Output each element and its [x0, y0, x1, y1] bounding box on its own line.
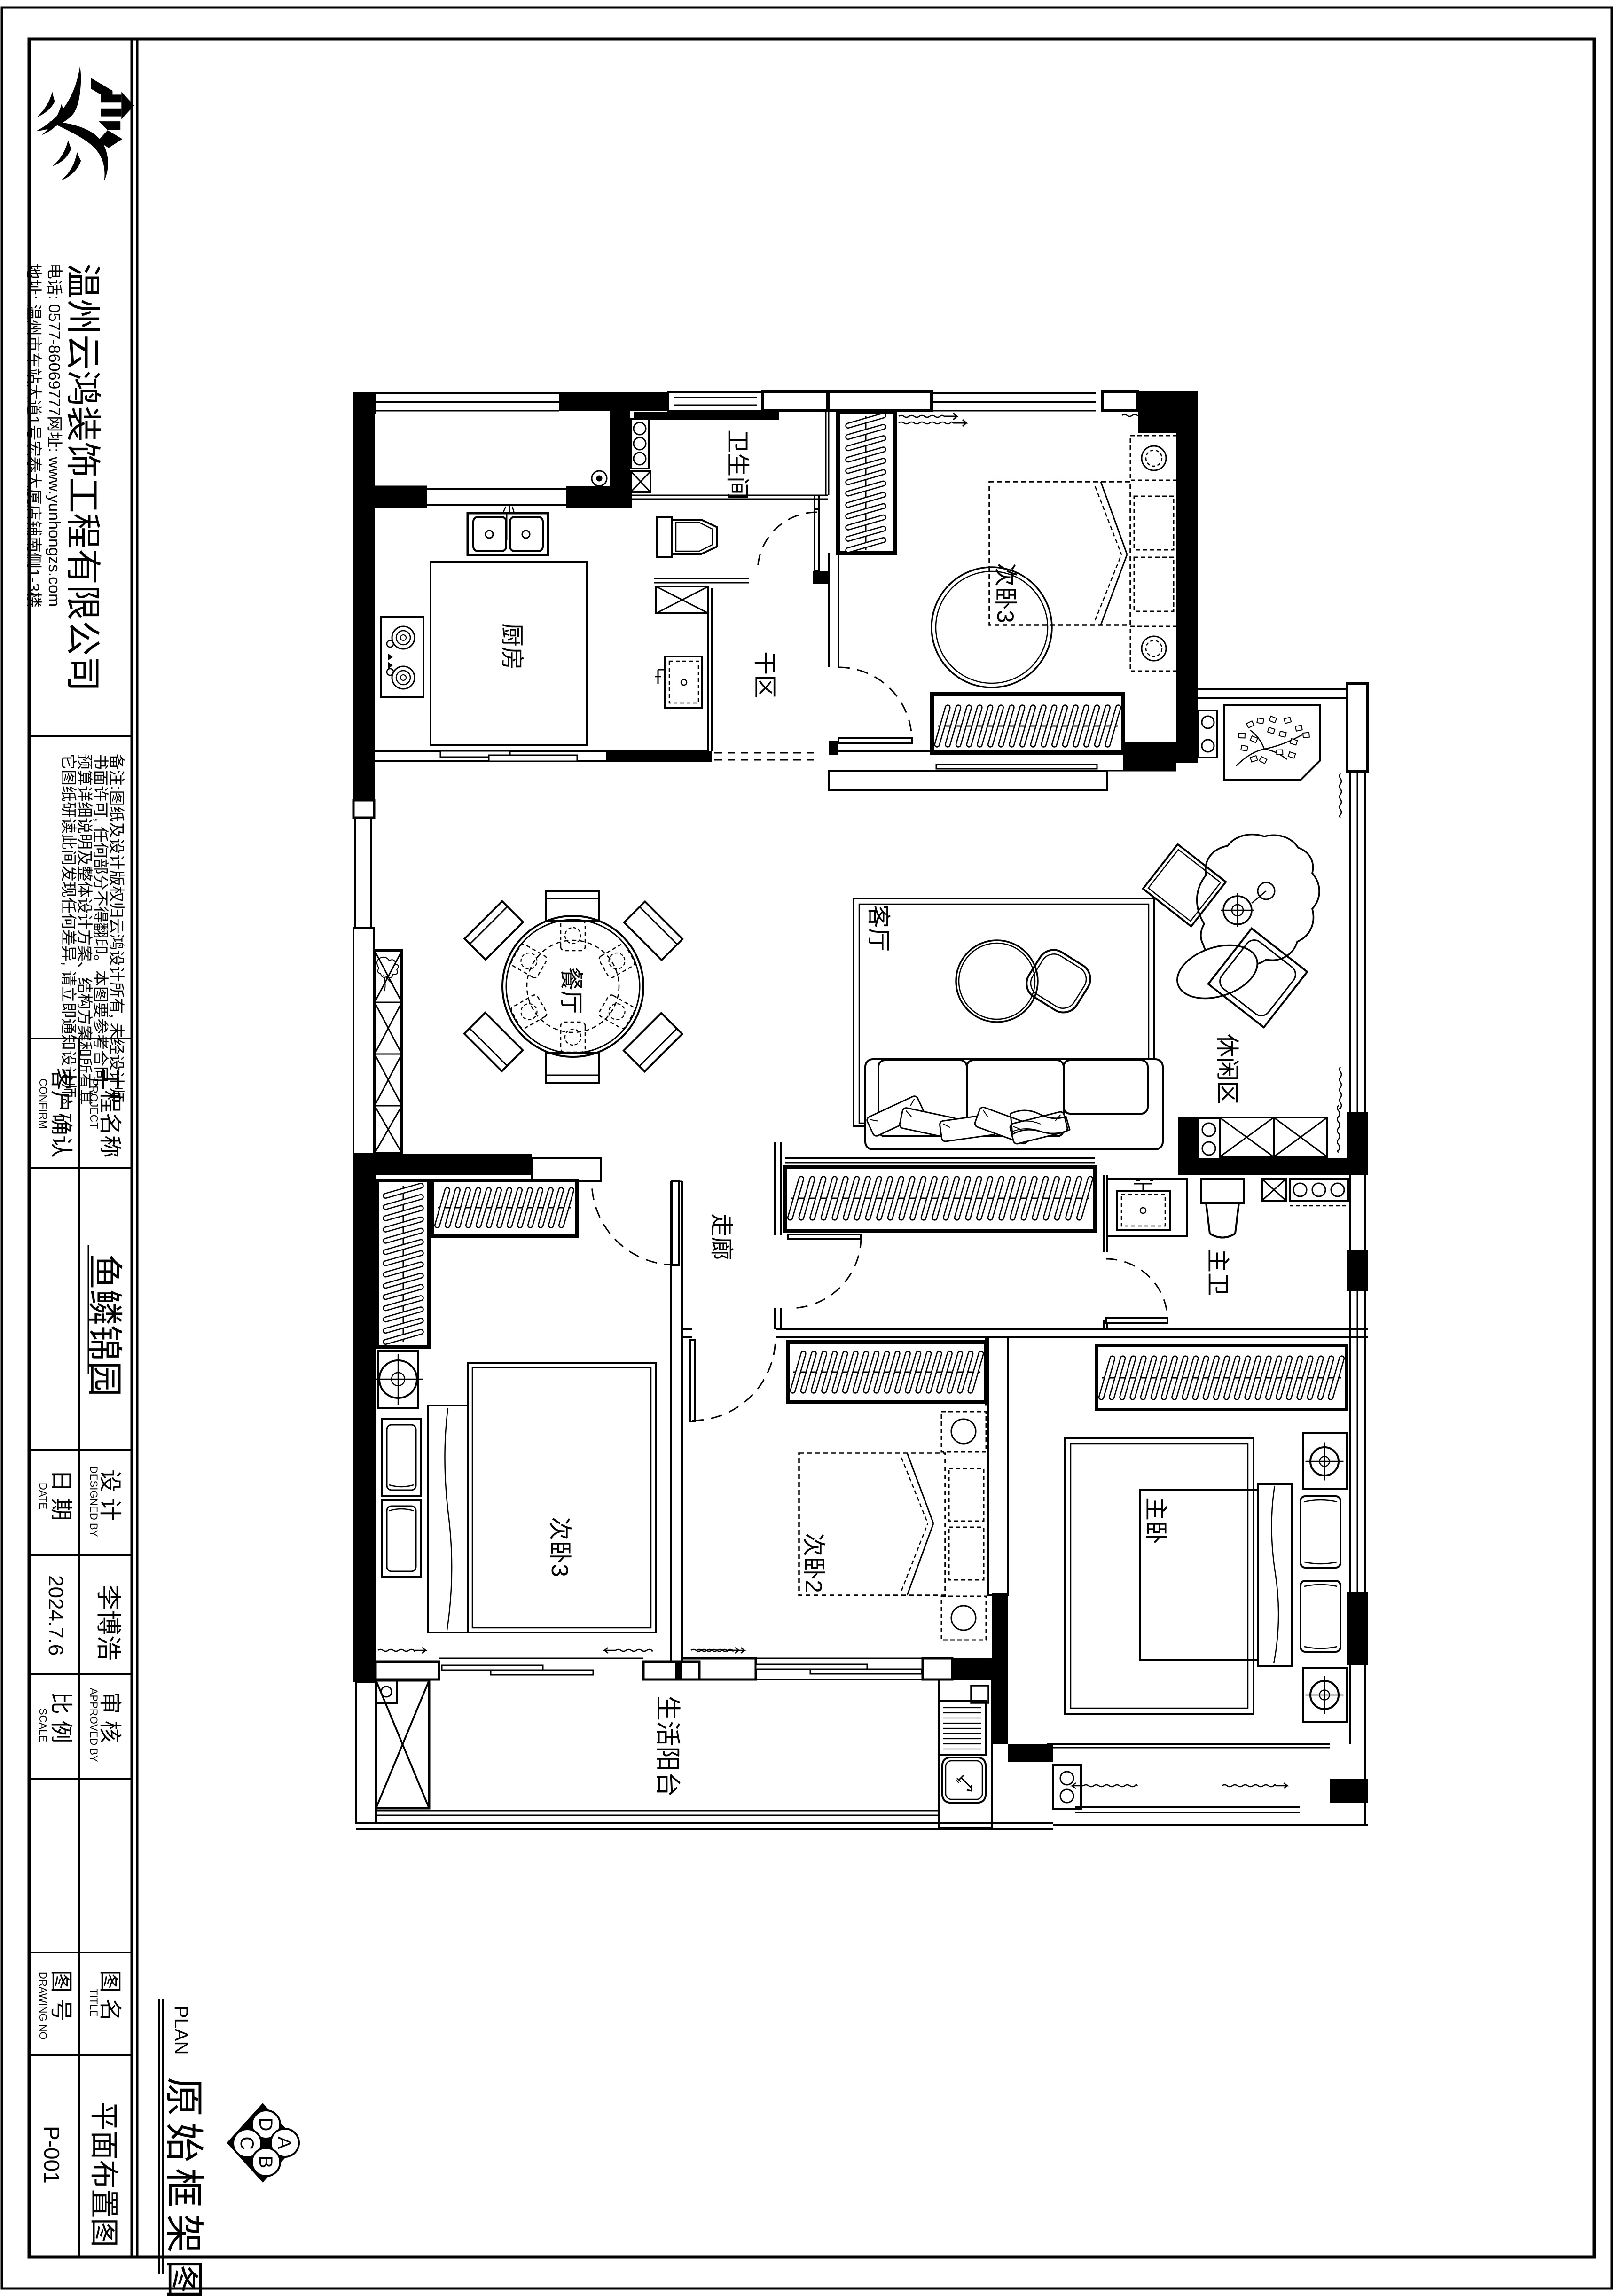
svg-text:PLAN: PLAN	[171, 2006, 191, 2055]
svg-text:C: C	[236, 2137, 257, 2150]
svg-text:它图纸研读此间发现任何差异, 请立即通知设计师。: 它图纸研读此间发现任何差异, 请立即通知设计师。	[59, 754, 77, 1114]
svg-text:地址: 温州市车站大道1号宏泰大厦店铺南侧1-3楼: 地址: 温州市车站大道1号宏泰大厦店铺南侧1-3楼	[24, 263, 42, 608]
svg-text:主卧: 主卧	[1143, 1497, 1169, 1544]
svg-text:PROJECT: PROJECT	[88, 1078, 100, 1129]
svg-text:书面许可, 任何部分不得翻印。本图要参考合同、: 书面许可, 任何部分不得翻印。本图要参考合同、	[91, 754, 109, 1098]
svg-text:设 计: 设 计	[97, 1469, 122, 1521]
svg-text:DESIGNED BY: DESIGNED BY	[88, 1466, 100, 1537]
svg-text:APPROVED BY: APPROVED BY	[88, 1688, 100, 1762]
svg-text:次卧2: 次卧2	[800, 1533, 827, 1593]
svg-text:李博浩: 李博浩	[94, 1585, 122, 1661]
svg-text:DRAWING NO: DRAWING NO	[37, 1972, 49, 2040]
svg-text:电话: 0577-86069777网址: www.yunho: 电话: 0577-86069777网址: www.yunhongzs.com	[45, 263, 63, 607]
svg-text:客户确认: 客户确认	[48, 1068, 73, 1158]
svg-text:DATE: DATE	[37, 1483, 49, 1509]
svg-text:2024.7.6: 2024.7.6	[44, 1575, 67, 1656]
svg-text:干区: 干区	[752, 651, 778, 698]
svg-text:餐厅: 餐厅	[558, 967, 584, 1014]
svg-text:厨房: 厨房	[499, 623, 525, 670]
svg-text:平面布置图: 平面布置图	[87, 2101, 120, 2247]
svg-text:B: B	[255, 2156, 276, 2169]
svg-text:走廊: 走廊	[708, 1213, 735, 1260]
svg-text:SCALE: SCALE	[37, 1708, 49, 1742]
svg-text:审 核: 审 核	[97, 1692, 122, 1743]
svg-text:鱼鳞锦园: 鱼鳞锦园	[84, 1254, 124, 1397]
svg-text:休闲区: 休闲区	[1214, 1034, 1240, 1104]
svg-text:图 名: 图 名	[97, 1970, 122, 2021]
svg-text:备注:图纸及设计版权归云鸿设计所有, 未经设计师: 备注:图纸及设计版权归云鸿设计所有, 未经设计师	[107, 754, 125, 1102]
svg-text:次卧3: 次卧3	[547, 1517, 573, 1577]
svg-text:原始框架图: 原始框架图	[162, 2077, 206, 2296]
svg-text:卫生间: 卫生间	[724, 430, 751, 500]
svg-text:图 号: 图 号	[48, 1970, 73, 2021]
svg-text:工程名称: 工程名称	[97, 1068, 122, 1158]
svg-text:预算详细说明及整体设计方案、结构方案和所有其: 预算详细说明及整体设计方案、结构方案和所有其	[75, 754, 93, 1105]
svg-text:D: D	[255, 2118, 276, 2132]
svg-text:TITLE: TITLE	[88, 1989, 100, 2017]
svg-text:温州云鸿装饰工程有限公司: 温州云鸿装饰工程有限公司	[63, 263, 102, 692]
svg-text:P-001: P-001	[39, 2126, 64, 2184]
svg-text:客厅: 客厅	[865, 905, 892, 952]
svg-text:比 例: 比 例	[48, 1692, 73, 1743]
svg-text:生活阳台: 生活阳台	[653, 1695, 682, 1797]
svg-text:日 期: 日 期	[48, 1469, 73, 1521]
svg-text:CONFIRM: CONFIRM	[37, 1078, 49, 1129]
svg-text:A: A	[274, 2137, 295, 2149]
svg-text:次卧3: 次卧3	[992, 563, 1019, 623]
svg-text:主卫: 主卫	[1205, 1249, 1231, 1296]
